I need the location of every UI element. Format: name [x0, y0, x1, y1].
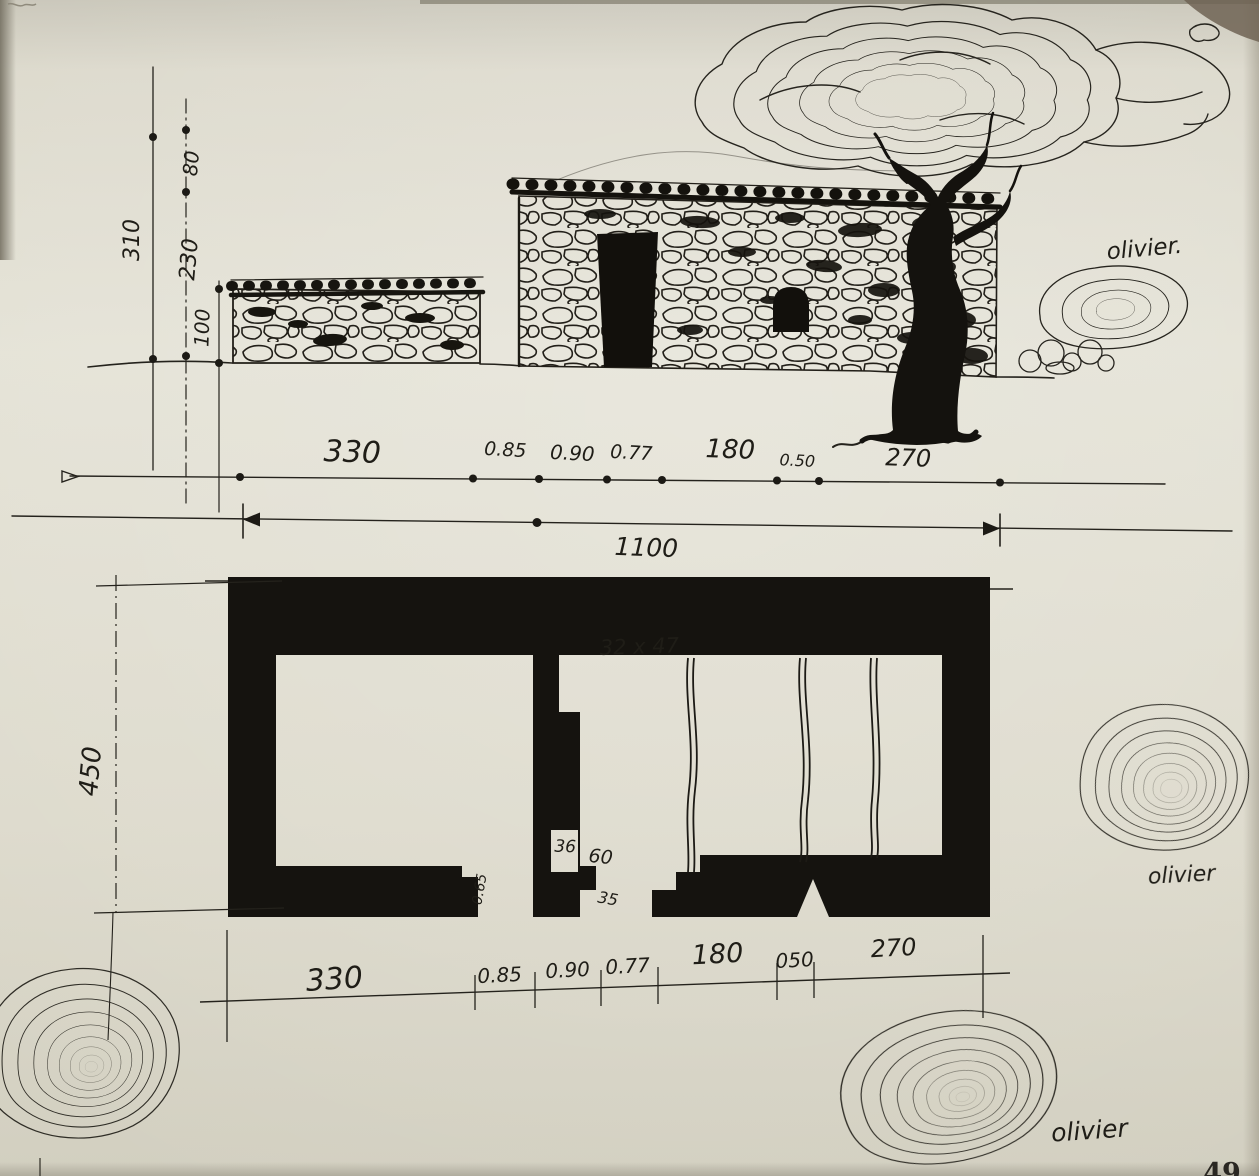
- dim-077: 0.77: [610, 441, 653, 465]
- olive-label-right: olivier: [1147, 861, 1218, 890]
- dim-077: 0.77: [605, 953, 651, 979]
- door-opening: [597, 232, 658, 367]
- olive-label-bottom: olivier: [1050, 1113, 1130, 1147]
- page-top-edge: [420, 0, 1259, 4]
- page-number: 49: [1203, 1158, 1241, 1176]
- dim-085: 0.85: [484, 438, 527, 462]
- page-gutter-shadow: [0, 0, 16, 260]
- architectural-sketch: olivier. 310 80 230 100: [0, 0, 1259, 1176]
- dim-085: 0.85: [477, 962, 523, 988]
- dim-80: 80: [178, 150, 204, 177]
- dim-050: 050: [775, 947, 814, 973]
- jamb-60-label: 60: [587, 845, 613, 869]
- dim-050: 0.50: [779, 450, 816, 471]
- dim-090: 0.90: [550, 440, 596, 466]
- jamb-36-label: 36: [554, 837, 577, 858]
- dim-100: 100: [189, 308, 214, 347]
- dim-270: 270: [870, 933, 917, 963]
- dim-090: 0.90: [545, 957, 591, 983]
- dim-180: 180: [691, 938, 744, 972]
- dim-450: 450: [74, 745, 108, 797]
- arched-window: [773, 287, 809, 332]
- page-right-shadow: [1243, 0, 1259, 1176]
- dim-270: 270: [885, 443, 932, 473]
- dim-total-1100: 1100: [614, 532, 679, 563]
- dim-180: 180: [705, 434, 756, 466]
- niche-label: 32 x 47: [599, 633, 680, 660]
- dim-330: 330: [305, 960, 365, 999]
- dim-230: 230: [175, 237, 204, 281]
- dim-310: 310: [120, 219, 145, 261]
- page-bottom-shadow: [0, 1162, 1259, 1176]
- sketchbook-page: olivier. 310 80 230 100: [0, 0, 1259, 1176]
- dim-330: 330: [323, 434, 381, 471]
- step-35-label: 35: [596, 887, 619, 909]
